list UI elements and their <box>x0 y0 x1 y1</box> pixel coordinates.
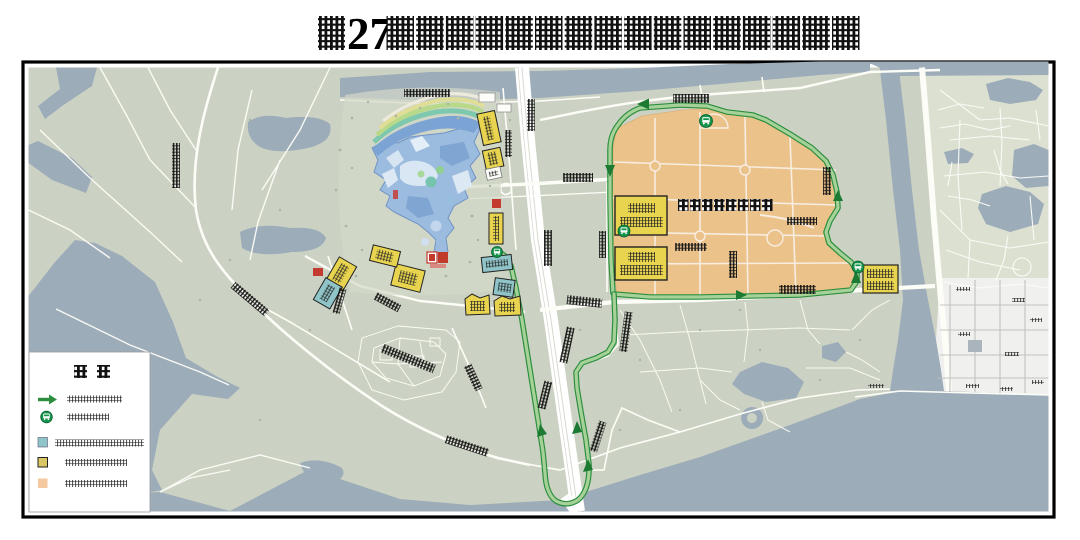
svg-text:27: 27 <box>347 9 392 59</box>
